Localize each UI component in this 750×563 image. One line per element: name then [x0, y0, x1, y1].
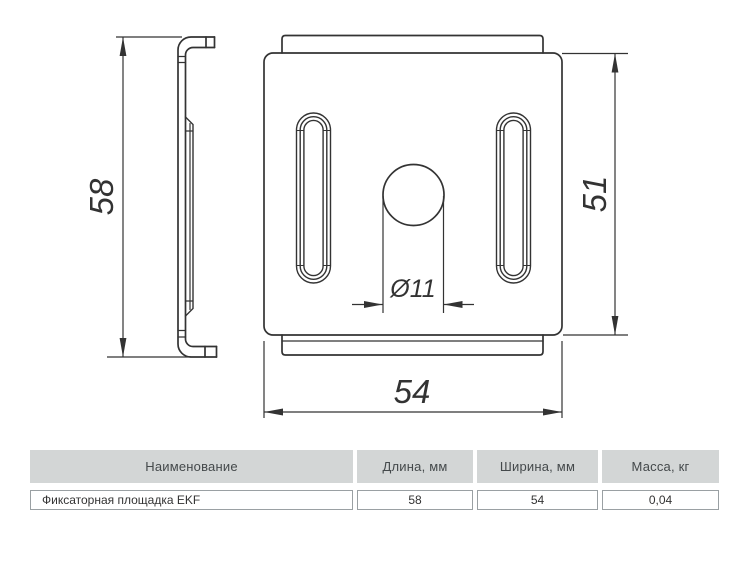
side-hook-caps: [205, 37, 217, 357]
dim-58-arrow-down: [120, 338, 127, 357]
drawing-canvas: 58: [0, 0, 750, 450]
slot-right-inner: [504, 120, 523, 275]
dim-hole-arrow-left: [364, 301, 383, 308]
side-view: [178, 37, 217, 357]
technical-drawing-page: 58: [0, 0, 750, 563]
dimension-hole-11: Ø11: [352, 196, 474, 313]
front-view: [264, 36, 562, 356]
plate-bottom-tab: [282, 335, 543, 355]
dim-51-arrow-down: [612, 316, 619, 335]
dim-58-label: 58: [83, 178, 120, 215]
side-rib-outline: [186, 117, 194, 316]
header-length: Длина, мм: [357, 450, 473, 483]
slot-right: [497, 113, 531, 283]
spec-table: Наименование Длина, мм Ширина, мм Масса,…: [30, 450, 719, 510]
slot-left-inner: [304, 120, 323, 275]
cell-width-value: 54: [477, 490, 598, 510]
slot-left-ticks: [297, 131, 331, 266]
slot-right-ticks: [497, 131, 531, 266]
spec-table-header-row: Наименование Длина, мм Ширина, мм Масса,…: [30, 450, 719, 483]
dimension-51: 51: [562, 54, 628, 336]
header-name: Наименование: [30, 450, 353, 483]
plate-top-tab: [282, 36, 543, 54]
dim-54-label: 54: [394, 373, 431, 410]
header-mass: Масса, кг: [602, 450, 719, 483]
dim-54-arrow-right: [543, 409, 562, 416]
header-width: Ширина, мм: [477, 450, 598, 483]
dim-51-label: 51: [576, 176, 613, 213]
spec-table-data-row: Фиксаторная площадка EKF 58 54 0,04: [30, 490, 719, 510]
center-hole: [383, 165, 444, 226]
dim-hole-label: Ø11: [389, 275, 435, 303]
dim-51-arrow-up: [612, 54, 619, 73]
dim-hole-arrow-right: [444, 301, 463, 308]
cell-product-name: Фиксаторная площадка EKF: [30, 490, 353, 510]
slot-left-outer: [297, 113, 331, 283]
cell-mass-value: 0,04: [602, 490, 719, 510]
dim-54-arrow-left: [264, 409, 283, 416]
dim-58-arrow-up: [120, 37, 127, 56]
slot-left: [297, 113, 331, 283]
slot-right-outer: [497, 113, 531, 283]
dimension-54: 54: [264, 341, 562, 418]
side-bend-ticks: [178, 57, 186, 338]
cell-length-value: 58: [357, 490, 473, 510]
dimension-58: 58: [83, 37, 191, 357]
side-rib-ticks: [186, 131, 194, 301]
side-outer-contour: [178, 37, 217, 357]
